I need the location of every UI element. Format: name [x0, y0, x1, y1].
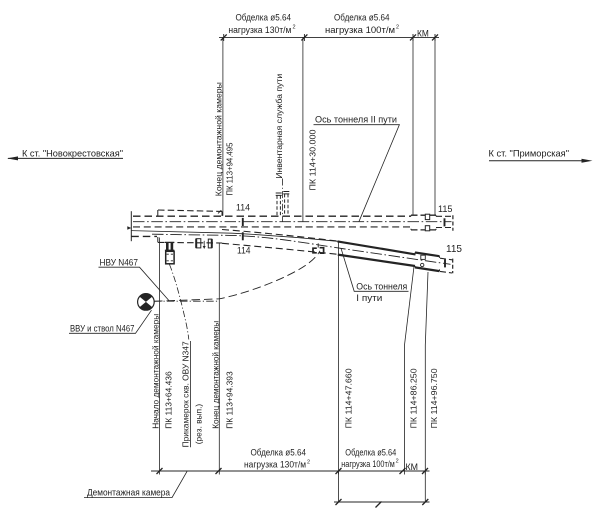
svg-text:115: 115 [446, 243, 462, 255]
svg-text:114: 114 [236, 202, 250, 213]
svg-text:Начало демонтажной камеры: Начало демонтажной камеры [152, 314, 161, 429]
svg-text:Конец демонтажной камеры: Конец демонтажной камеры [211, 321, 220, 429]
svg-text:2: 2 [396, 459, 399, 465]
svg-text:114: 114 [237, 245, 251, 256]
svg-text:Инвентарная служба пути: Инвентарная служба пути [275, 74, 284, 179]
svg-text:Ось тоннеля II пути: Ось тоннеля II пути [315, 115, 397, 125]
svg-text:Обделка ø5.64: Обделка ø5.64 [345, 447, 396, 457]
svg-text:ПК 114+96.750: ПК 114+96.750 [430, 368, 439, 428]
svg-text:ПК 113+94.495: ПК 113+94.495 [225, 142, 234, 195]
svg-text:КМ: КМ [417, 28, 429, 38]
svg-text:нагрузка 100т/м: нагрузка 100т/м [341, 459, 395, 469]
svg-text:I пути: I пути [356, 293, 382, 303]
svg-text:КМ: КМ [406, 462, 419, 472]
svg-text:Обделка ø5.64: Обделка ø5.64 [251, 447, 307, 457]
svg-text:ПК 113+64.436: ПК 113+64.436 [165, 371, 174, 429]
svg-text:ВВУ и ствол N467: ВВУ и ствол N467 [70, 324, 135, 334]
svg-text:Обделка ø5.64: Обделка ø5.64 [236, 13, 292, 23]
svg-text:ПК 113+94.393: ПК 113+94.393 [226, 371, 235, 429]
svg-text:нагрузка 100т/м: нагрузка 100т/м [325, 25, 395, 35]
svg-text:Конец демонтажной камеры: Конец демонтажной камеры [215, 82, 224, 196]
svg-text:Демонтажная камера: Демонтажная камера [87, 487, 170, 497]
svg-text:ПК 114+30.000: ПК 114+30.000 [308, 129, 317, 190]
svg-text:2: 2 [293, 25, 296, 31]
svg-text:2: 2 [307, 459, 310, 465]
svg-text:нагрузка 130т/м: нагрузка 130т/м [244, 460, 306, 470]
svg-text:Ось тоннеля: Ось тоннеля [356, 282, 407, 292]
svg-text:К ст. "Приморская": К ст. "Приморская" [489, 148, 570, 158]
svg-text:НВУ N467: НВУ N467 [100, 258, 139, 268]
svg-text:ПК 114+47.660: ПК 114+47.660 [344, 368, 353, 428]
svg-text:нагрузка 130т/м: нагрузка 130т/м [228, 25, 291, 35]
svg-text:Обделка ø5.64: Обделка ø5.64 [334, 13, 390, 23]
svg-text:(рез. вып.): (рез. вып.) [194, 404, 203, 445]
svg-text:2: 2 [396, 25, 399, 31]
svg-text:ПК 114+86.250: ПК 114+86.250 [409, 368, 418, 428]
svg-text:К ст. "Новокрестовская": К ст. "Новокрестовская" [22, 148, 123, 158]
svg-text:115: 115 [438, 204, 453, 215]
svg-text:Прикамерок скв. ОВУ N347: Прикамерок скв. ОВУ N347 [182, 341, 191, 447]
